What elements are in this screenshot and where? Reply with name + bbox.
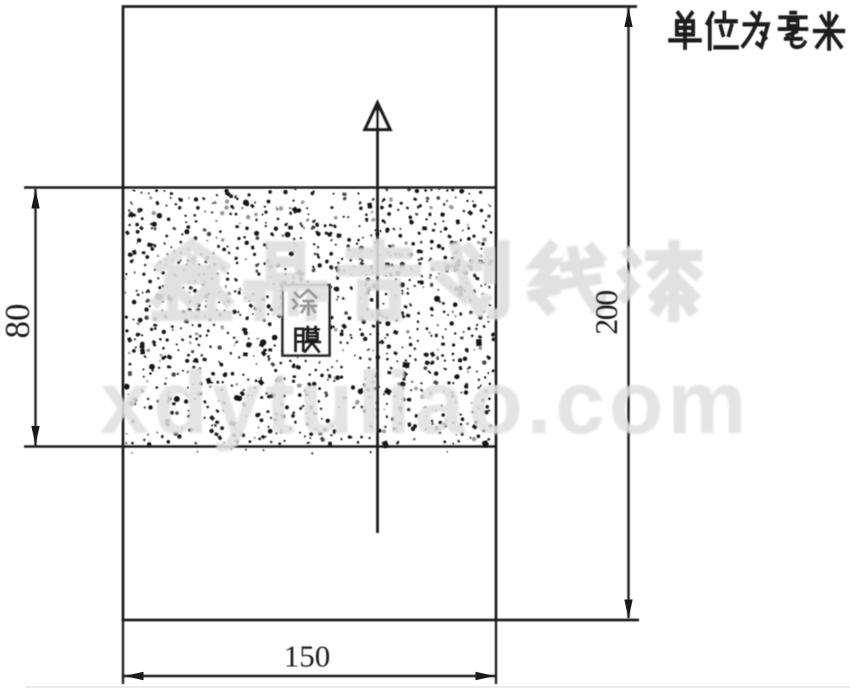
svg-text:80: 80 — [0, 304, 37, 339]
svg-text:200: 200 — [588, 291, 624, 335]
svg-text:150: 150 — [284, 639, 331, 674]
svg-text:xdytuliao.com: xdytuliao.com — [100, 352, 750, 452]
